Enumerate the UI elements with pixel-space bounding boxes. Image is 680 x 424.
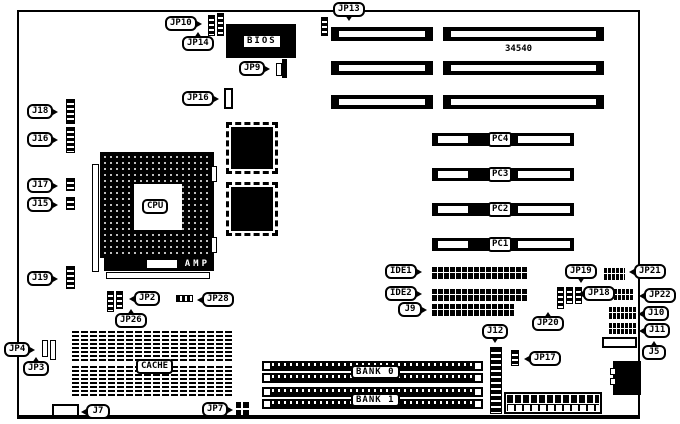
callout-jp20: JP20: [532, 316, 564, 331]
keyboard-connector-notch: [610, 378, 616, 385]
jumper-jp13: [321, 17, 328, 36]
isa-slot: [443, 27, 604, 41]
pci-slot-pc2: PC2: [432, 203, 574, 216]
callout-j7: J7: [86, 404, 110, 419]
jumper-jp10: [217, 13, 224, 36]
simm-clip: [475, 389, 481, 395]
simm-clip: [264, 401, 270, 407]
j11-header: [609, 323, 636, 334]
jp22-header: [614, 289, 633, 300]
callout-jp26: JP26: [115, 313, 147, 328]
pci-slot-pc4: PC4: [432, 133, 574, 146]
callout-jp22: JP22: [644, 288, 676, 303]
callout-j11: J11: [644, 323, 670, 338]
amp-bar-window: [147, 260, 177, 268]
jumper-jp2: [107, 291, 114, 312]
isa-slot: [331, 95, 433, 109]
ide2-header: [432, 289, 528, 301]
callout-jp18: JP18: [583, 286, 615, 301]
keyboard-connector-notch: [610, 368, 616, 375]
cpu-side-bar: [92, 164, 99, 272]
bank1-label: BANK 1: [351, 393, 400, 407]
bank0-label: BANK 0: [351, 365, 400, 379]
pci-slot-label: PC3: [488, 167, 512, 182]
motherboard-diagram: 34540 PC4 PC3 PC2 PC1 BIOS JP10 JP14 JP1…: [0, 0, 680, 424]
jumper-jp16: [224, 88, 233, 109]
cpu-side-tab: [211, 237, 217, 253]
jumper-jp20: [557, 287, 564, 309]
qfp-chip: [226, 182, 278, 236]
jumper-jp7: [236, 402, 249, 415]
simm-contacts: [272, 389, 473, 392]
bios-chip-label: BIOS: [243, 35, 281, 48]
isa-slot: [443, 95, 604, 109]
callout-jp7: JP7: [202, 402, 228, 417]
part-number-label: 34540: [505, 45, 532, 54]
simm-clip: [264, 375, 270, 381]
simm-clip: [475, 401, 481, 407]
callout-j16: J16: [27, 132, 53, 147]
callout-jp2: JP2: [134, 291, 160, 306]
callout-j10: J10: [643, 306, 669, 321]
pci-slot-pc1: PC1: [432, 238, 574, 251]
ide1-header: [432, 267, 528, 279]
jumper-jp17: [511, 350, 519, 366]
jumper-jp2: [116, 291, 123, 309]
callout-ide2: IDE2: [385, 286, 417, 301]
jp21-header: [604, 268, 625, 280]
callout-jp19: JP19: [565, 264, 597, 279]
amp-bar: AMP: [104, 257, 214, 271]
simm-clip: [264, 363, 270, 369]
jumper-jp9: [282, 59, 287, 78]
power-connector: [504, 392, 602, 414]
pci-slot-label: PC2: [488, 202, 512, 217]
callout-jp21: JP21: [634, 264, 666, 279]
callout-jp28: JP28: [202, 292, 234, 307]
j9-header: [432, 304, 514, 316]
power-connector-sockets: [507, 404, 599, 411]
simm-clip: [264, 389, 270, 395]
callout-jp3: JP3: [23, 361, 49, 376]
keyboard-connector: [613, 361, 641, 395]
jumper-j18: [66, 99, 75, 124]
simm-clip: [475, 363, 481, 369]
jumper-j19: [66, 266, 75, 289]
callout-jp16: JP16: [182, 91, 214, 106]
callout-j12: J12: [482, 324, 508, 339]
bios-chip: BIOS: [226, 24, 296, 58]
cpu-side-tab: [211, 166, 217, 182]
cpu-socket-center: CPU: [134, 184, 182, 230]
amp-label: AMP: [185, 260, 210, 269]
callout-j19: J19: [27, 271, 53, 286]
callout-ide1: IDE1: [385, 264, 417, 279]
jumper-jp28: [176, 295, 193, 302]
callout-jp17: JP17: [529, 351, 561, 366]
jumper-jp4: [42, 340, 48, 357]
pci-slot-label: PC4: [488, 132, 512, 147]
jumper-j15: [66, 197, 75, 210]
callout-jp9: JP9: [239, 61, 265, 76]
callout-j5: J5: [642, 345, 666, 360]
pci-slot-label: PC1: [488, 237, 512, 252]
simm-clip: [475, 375, 481, 381]
jumper-jp3: [50, 340, 56, 360]
isa-slot: [331, 27, 433, 41]
callout-jp4: JP4: [4, 342, 30, 357]
connector-j7: [52, 404, 79, 417]
callout-j17: J17: [27, 178, 53, 193]
callout-jp14: JP14: [182, 36, 214, 51]
amp-bar-base: [106, 272, 210, 279]
cpu-label: CPU: [142, 199, 168, 214]
jumper-jp10: [208, 15, 215, 36]
cpu-socket: CPU: [100, 152, 214, 258]
j10-header: [609, 307, 636, 319]
jumper-jp19: [566, 287, 573, 304]
callout-j9: J9: [398, 302, 422, 317]
callout-j15: J15: [27, 197, 53, 212]
jumper-j16: [66, 127, 75, 153]
qfp-chip: [226, 122, 278, 174]
j12-connector: [490, 347, 502, 414]
isa-slot: [443, 61, 604, 75]
isa-slot: [331, 61, 433, 75]
callout-j18: J18: [27, 104, 53, 119]
j5-connector: [602, 337, 637, 348]
power-connector-pins: [507, 395, 599, 403]
callout-jp10: JP10: [165, 16, 197, 31]
pci-slot-pc3: PC3: [432, 168, 574, 181]
callout-jp13: JP13: [333, 2, 365, 17]
cache-label: CACHE: [136, 359, 173, 374]
jumper-j17: [66, 178, 75, 191]
